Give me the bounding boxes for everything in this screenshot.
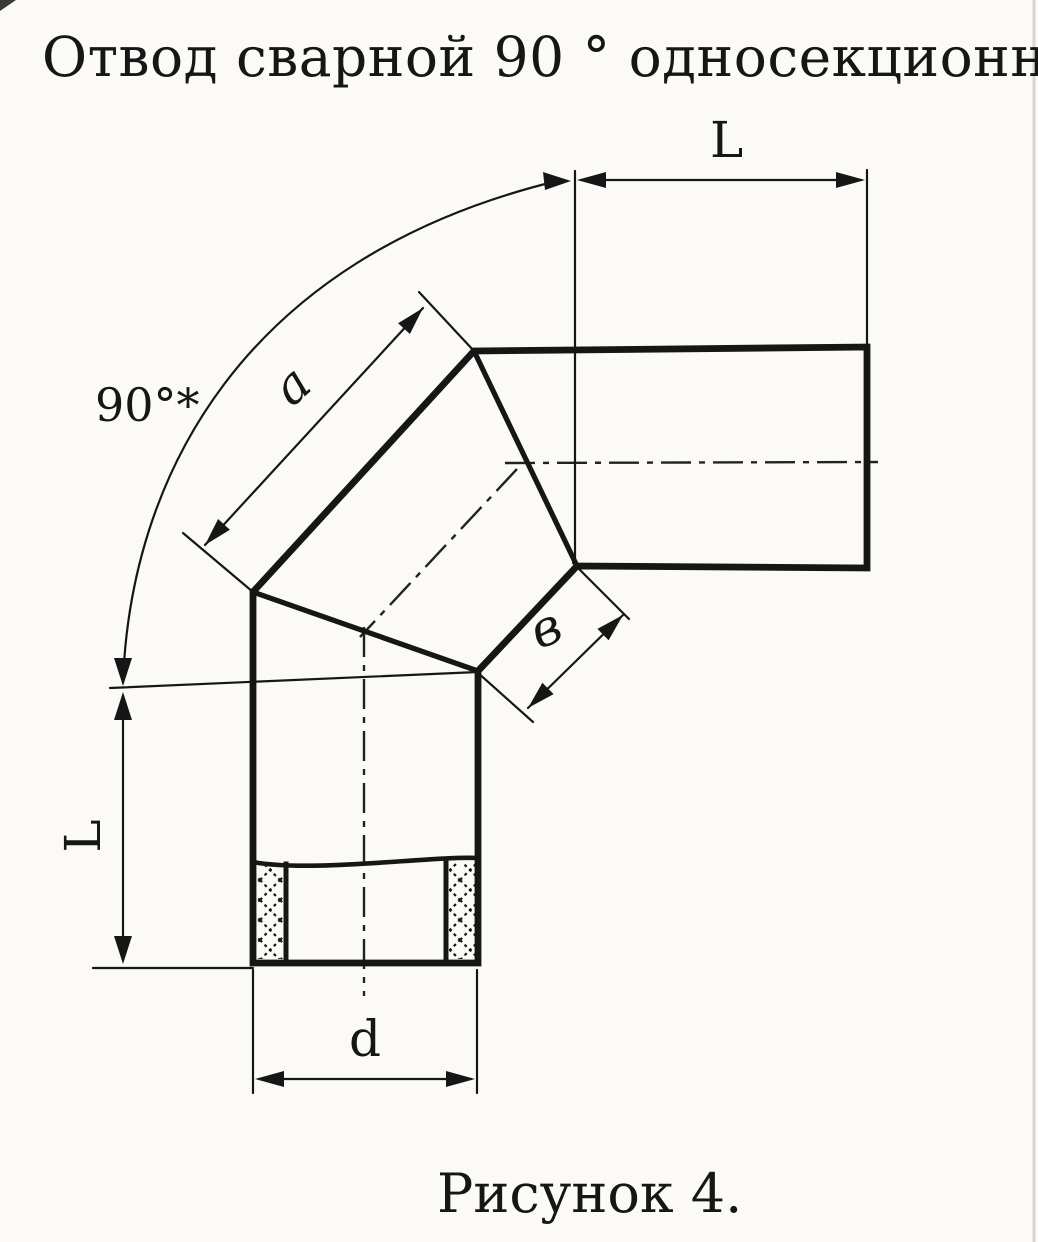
paper-background xyxy=(0,0,1038,1242)
scanned-drawing-page: Отвод сварной 90 ° односекционный xyxy=(0,0,1038,1242)
socket-wall-hatch-right xyxy=(449,863,476,959)
figure-caption: Рисунок 4. xyxy=(437,1162,742,1225)
angle-label: 90°* xyxy=(95,378,200,432)
left-length-label: L xyxy=(54,819,112,852)
socket-wall-hatch-left xyxy=(255,866,283,959)
elbow-technical-drawing: Отвод сварной 90 ° односекционный xyxy=(0,0,1038,1242)
top-length-label: L xyxy=(710,111,743,169)
diameter-label: d xyxy=(349,1010,381,1068)
drawing-title: Отвод сварной 90 ° односекционный xyxy=(42,25,1038,89)
